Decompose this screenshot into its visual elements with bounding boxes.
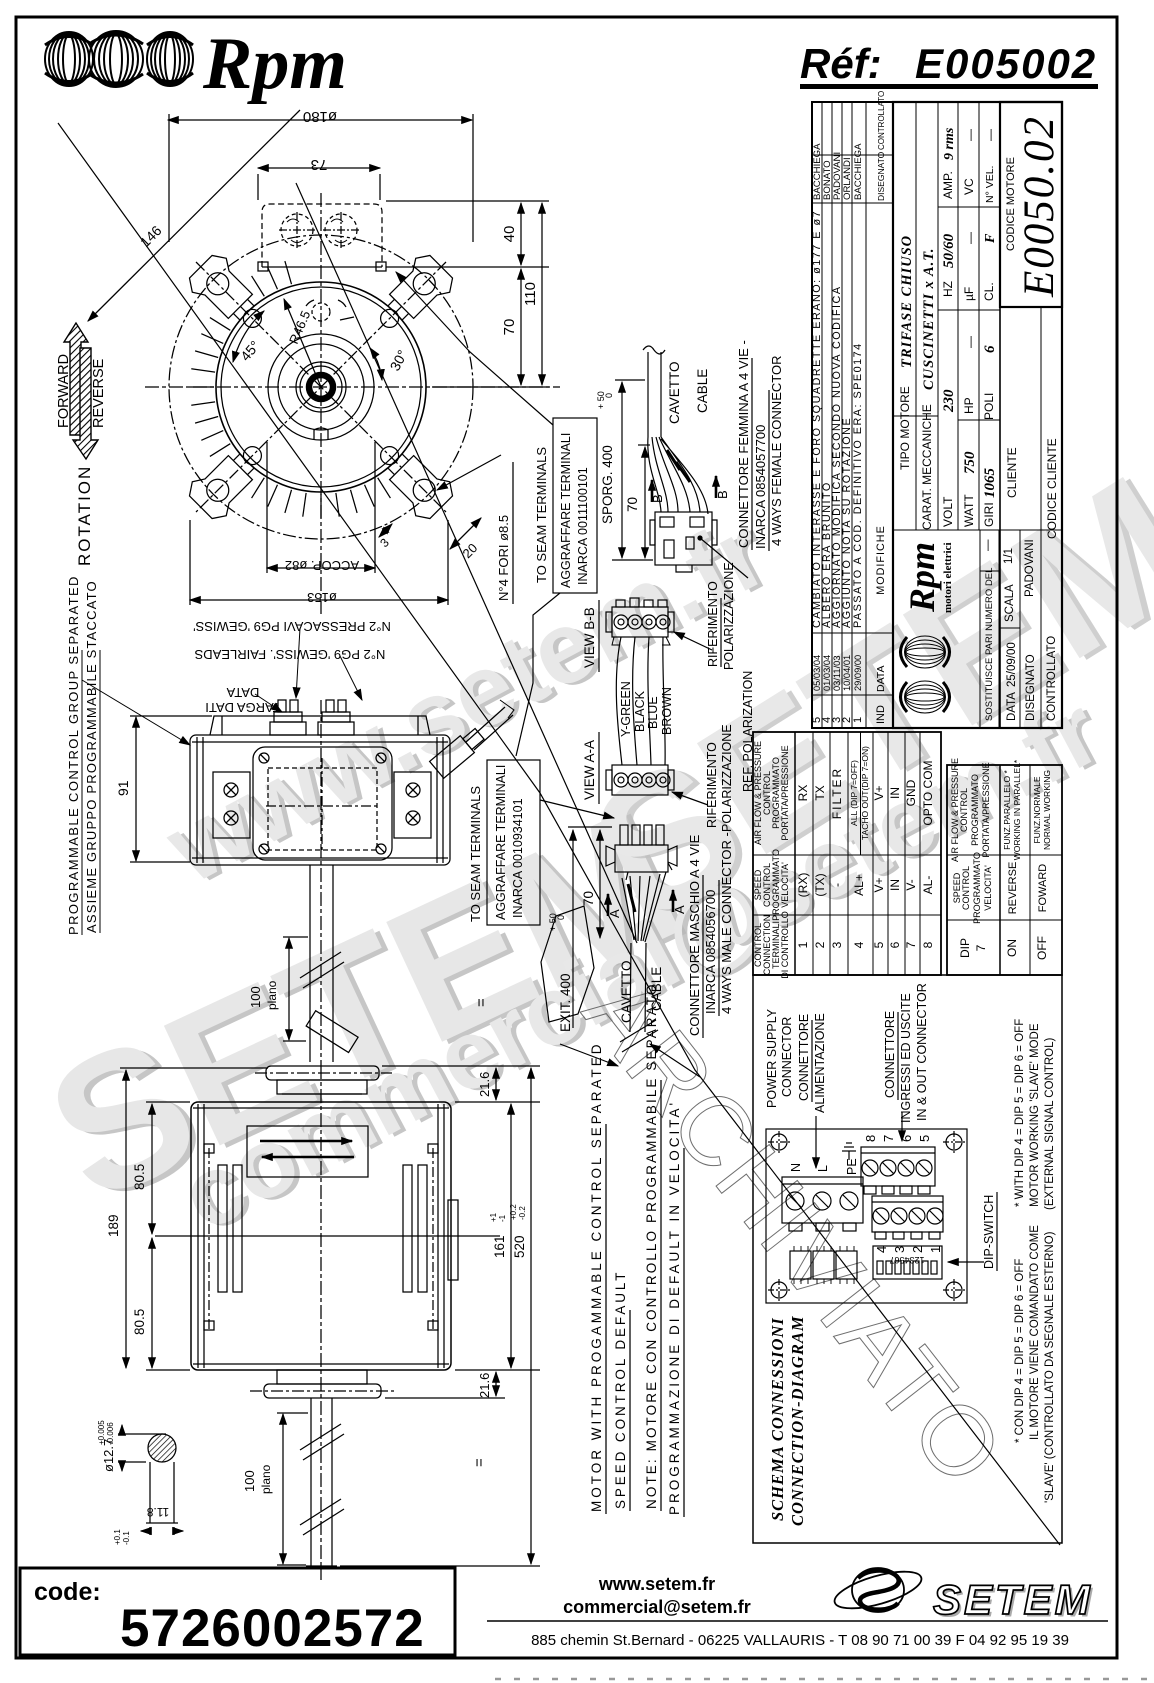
- svg-text:IND: IND: [875, 705, 887, 724]
- svg-text:1: 1: [796, 941, 810, 948]
- svg-text:GND: GND: [904, 779, 918, 806]
- svg-text:PASSATO A COD. DEFINITIVO ERA:: PASSATO A COD. DEFINITIVO ERA: SPE0174: [852, 342, 864, 628]
- svg-text:WORKING IN PARALLEL*: WORKING IN PARALLEL*: [1012, 759, 1022, 860]
- svg-text:BLUE: BLUE: [646, 696, 660, 729]
- svg-text:B: B: [715, 490, 730, 499]
- svg-text:10/04/01: 10/04/01: [842, 655, 852, 691]
- svg-text:FUNZ.NORMALE: FUNZ.NORMALE: [1032, 776, 1042, 843]
- svg-text:Réf:: Réf:: [800, 40, 882, 87]
- svg-text:DI CONTROLLO: DI CONTROLLO: [780, 911, 790, 979]
- svg-text:CONNECTION-DIAGRAM: CONNECTION-DIAGRAM: [788, 1315, 807, 1526]
- svg-text:05/03/04: 05/03/04: [812, 655, 822, 691]
- svg-text:NOTE: MOTORE CON CONTROLLO PRO: NOTE: MOTORE CON CONTROLLO PROGRAMMABILE…: [644, 983, 659, 1509]
- svg-text:520: 520: [512, 1235, 527, 1258]
- svg-text:4 WAYS FEMALE CONNECTOR: 4 WAYS FEMALE CONNECTOR: [769, 356, 784, 546]
- svg-text:8: 8: [863, 1135, 878, 1142]
- svg-text:RIFERIMENTO: RIFERIMENTO: [705, 742, 719, 828]
- svg-text:FILTER: FILTER: [830, 767, 844, 819]
- svg-text:A: A: [607, 909, 622, 918]
- svg-text:REVERSE: REVERSE: [1007, 862, 1019, 915]
- svg-text:B: B: [650, 494, 665, 503]
- svg-text:1/1: 1/1: [1003, 548, 1015, 564]
- svg-text:91: 91: [115, 780, 131, 796]
- svg-text:161: 161: [492, 1235, 507, 1258]
- svg-text:80.5: 80.5: [132, 1309, 147, 1335]
- svg-text:BLACK: BLACK: [633, 690, 647, 732]
- svg-text:HP: HP: [962, 397, 976, 414]
- svg-text:11.8: 11.8: [146, 1505, 169, 1519]
- svg-text:BACCHIEGA: BACCHIEGA: [853, 143, 864, 200]
- svg-text:OPTO COM: OPTO COM: [921, 760, 935, 825]
- svg-text:-0.006: -0.006: [106, 1422, 115, 1445]
- svg-text:plano: plano: [259, 1464, 273, 1494]
- svg-text:CODICE CLIENTE: CODICE CLIENTE: [1045, 438, 1059, 539]
- svg-text:PROGRAMMABLE CONTROL GROUP SEP: PROGRAMMABLE CONTROL GROUP SEPARATED: [66, 575, 81, 935]
- svg-text:SPORG. 400: SPORG. 400: [600, 445, 615, 524]
- svg-text:IN & OUT CONNECTOR: IN & OUT CONNECTOR: [915, 983, 929, 1121]
- svg-text:VIEW B-B: VIEW B-B: [582, 607, 597, 668]
- svg-text:TRIFASE CHIUSO: TRIFASE CHIUSO: [899, 235, 915, 368]
- svg-text:FOWARD: FOWARD: [1037, 864, 1049, 913]
- svg-text:DIP: DIP: [958, 938, 972, 958]
- svg-text:F: F: [983, 233, 998, 244]
- svg-text:CUSCINETTI x A.T.: CUSCINETTI x A.T.: [921, 248, 937, 390]
- svg-text:CONTROLLATO: CONTROLLATO: [877, 91, 886, 150]
- svg-text:100: 100: [242, 1470, 257, 1492]
- svg-text:Y-GREEN: Y-GREEN: [619, 681, 633, 737]
- svg-text:50/60: 50/60: [941, 233, 957, 268]
- svg-text:25/09/00: 25/09/00: [1006, 642, 1018, 687]
- svg-text:A: A: [672, 905, 687, 914]
- svg-text:INGRESSI ED USCITE: INGRESSI ED USCITE: [899, 993, 913, 1123]
- svg-text:HZ: HZ: [941, 281, 955, 297]
- svg-text:CAVETTO: CAVETTO: [667, 361, 682, 424]
- svg-text:CONTROL: CONTROL: [959, 788, 969, 832]
- svg-text:4 WAYS MALE CONNECTOR -: 4 WAYS MALE CONNECTOR -: [719, 832, 734, 1014]
- svg-text:1: 1: [852, 717, 864, 723]
- svg-text:-0.2: -0.2: [518, 1206, 527, 1220]
- svg-text:70: 70: [501, 319, 518, 336]
- svg-text:CARAT. MECCANICHE: CARAT. MECCANICHE: [920, 404, 934, 530]
- svg-text:plano: plano: [265, 980, 279, 1010]
- svg-text:03/11/03: 03/11/03: [832, 656, 842, 692]
- svg-text:PORTATA/PRESSIONE: PORTATA/PRESSIONE: [780, 745, 790, 840]
- svg-text:VC: VC: [962, 178, 976, 195]
- svg-text:FUNZ.PARALLELO *: FUNZ.PARALLELO *: [1002, 769, 1012, 849]
- svg-text:AGGRAFFARE TERMINALI: AGGRAFFARE TERMINALI: [559, 433, 573, 588]
- svg-text:29/09/00: 29/09/00: [853, 655, 863, 691]
- svg-text:EXIT. 400: EXIT. 400: [558, 973, 573, 1032]
- svg-text:70: 70: [581, 891, 596, 906]
- svg-text:CONNETTORE MASCHIO A 4 VIE: CONNETTORE MASCHIO A 4 VIE: [687, 834, 702, 1036]
- svg-text:GIRI: GIRI: [982, 502, 996, 527]
- svg-text:80.5: 80.5: [132, 1164, 147, 1190]
- svg-text:ON: ON: [1005, 939, 1019, 957]
- svg-text:ASSIEME GRUPPO PROGRAMMABILE S: ASSIEME GRUPPO PROGRAMMABILE STACCATO: [84, 580, 99, 933]
- svg-text:40: 40: [501, 226, 518, 243]
- svg-text:6: 6: [888, 941, 902, 948]
- svg-text:+1: +1: [489, 1212, 498, 1222]
- svg-text:PROGRAMMAZIONE DI DEFAULT IN V: PROGRAMMAZIONE DI DEFAULT IN VELOCITA': [667, 1100, 682, 1515]
- svg-text:N°4 FORI ø8.5: N°4 FORI ø8.5: [496, 515, 511, 601]
- svg-text:V+: V+: [872, 785, 886, 800]
- svg-text:=: =: [473, 998, 490, 1007]
- svg-text:V+: V+: [872, 877, 886, 892]
- svg-text:INARCA 0854057700: INARCA 0854057700: [753, 425, 768, 549]
- svg-text:21.6: 21.6: [477, 1072, 492, 1097]
- svg-text:0: 0: [556, 915, 566, 920]
- svg-text:INARCA 0011100101: INARCA 0011100101: [576, 467, 590, 585]
- svg-text:(TX): (TX): [813, 873, 827, 896]
- svg-text:PORTATA/PRESSIONE: PORTATA/PRESSIONE: [981, 762, 991, 857]
- svg-text:CL.: CL.: [982, 282, 996, 301]
- svg-text:DIP-SWITCH: DIP-SWITCH: [982, 1195, 996, 1269]
- svg-text:DISEGNATO: DISEGNATO: [876, 151, 886, 201]
- svg-text:V-: V-: [904, 879, 918, 890]
- svg-text:SCALA: SCALA: [1004, 584, 1016, 622]
- svg-text:VELOCITA': VELOCITA': [983, 865, 993, 911]
- svg-text:RIFERIMENTO: RIFERIMENTO: [706, 581, 720, 667]
- svg-text:ALL (DIP 7=OFF): ALL (DIP 7=OFF): [849, 760, 859, 826]
- svg-text:IN: IN: [888, 879, 902, 891]
- svg-text:VIEW A-A: VIEW A-A: [582, 740, 597, 800]
- svg-text:=: =: [471, 1458, 488, 1467]
- svg-text:CONTROLLATO: CONTROLLATO: [1046, 636, 1058, 721]
- svg-text:4: 4: [852, 941, 866, 948]
- svg-text:—: —: [963, 232, 977, 244]
- svg-text:TARGA DATI: TARGA DATI: [205, 700, 280, 715]
- svg-text:—: —: [963, 129, 977, 141]
- svg-text:230: 230: [941, 389, 957, 413]
- svg-text:IL MOTORE VIENE COMANDATO COME: IL MOTORE VIENE COMANDATO COME: [1029, 1225, 1041, 1440]
- svg-text:RX: RX: [796, 785, 810, 802]
- svg-text:VELOCITA': VELOCITA': [780, 862, 790, 908]
- svg-text:CONNETTORE: CONNETTORE: [883, 1011, 897, 1098]
- svg-text:REVERSE: REVERSE: [91, 358, 107, 428]
- svg-text:WATT: WATT: [962, 494, 976, 527]
- svg-text:POLARIZZAZIONE: POLARIZZAZIONE: [722, 562, 736, 670]
- svg-text:73: 73: [311, 156, 328, 173]
- svg-text:MOTOR WITH PROGAMMABLE CONTROL: MOTOR WITH PROGAMMABLE CONTROL SEPARATED: [589, 1041, 604, 1512]
- svg-text:POLI: POLI: [982, 393, 996, 420]
- svg-text:motori elettrici: motori elettrici: [942, 542, 954, 613]
- svg-text:7: 7: [974, 944, 988, 951]
- svg-text:6: 6: [982, 345, 998, 353]
- svg-text:SPEED CONTROL DEFAULT: SPEED CONTROL DEFAULT: [613, 1270, 628, 1509]
- svg-text:—: —: [982, 539, 994, 551]
- svg-text:2: 2: [813, 941, 827, 948]
- svg-text:ROTATION: ROTATION: [75, 465, 94, 566]
- svg-text:+0.2: +0.2: [509, 1204, 518, 1220]
- svg-text:-0.1: -0.1: [122, 1531, 131, 1545]
- svg-text:* CON DIP 4 = DIP 5 = DIP 6 =: * CON DIP 4 = DIP 5 = DIP 6 = OFF: [1014, 1259, 1026, 1443]
- svg-text:DISEGNATO: DISEGNATO: [1025, 654, 1037, 721]
- svg-text:ORLANDI: ORLANDI: [842, 157, 853, 200]
- svg-text:OFF: OFF: [1035, 936, 1049, 960]
- svg-text:CONTROL: CONTROL: [961, 866, 971, 910]
- svg-text:CAVETTO: CAVETTO: [619, 960, 634, 1023]
- svg-text:AL-: AL-: [921, 876, 935, 895]
- svg-text:2: 2: [910, 1246, 925, 1253]
- svg-text:DATA: DATA: [875, 666, 887, 692]
- svg-text:1: 1: [928, 1246, 943, 1253]
- svg-text:(EXTERNAL SIGNAL CONTROL): (EXTERNAL SIGNAL CONTROL): [1044, 1038, 1056, 1210]
- svg-text:SOSTITUISCE PARI NUMERO DEL: SOSTITUISCE PARI NUMERO DEL: [984, 568, 995, 721]
- svg-text:'SLAVE' (CONTROLLATO DA SEGNAL: 'SLAVE' (CONTROLLATO DA SEGNALE ESTERNO): [1044, 1231, 1056, 1503]
- svg-text:AMP.: AMP.: [941, 171, 955, 199]
- svg-text:CLIENTE: CLIENTE: [1005, 447, 1019, 498]
- svg-text:commercial@setem.fr: commercial@setem.fr: [563, 1597, 751, 1617]
- svg-text:TO SEAM TERMINALS: TO SEAM TERMINALS: [534, 447, 549, 583]
- svg-text:3: 3: [892, 1246, 907, 1253]
- svg-text:+0.005: +0.005: [97, 1420, 106, 1445]
- svg-text:N°2 PRESSACAVI PG9 'GEWISS': N°2 PRESSACAVI PG9 'GEWISS': [193, 619, 391, 634]
- svg-text:TX: TX: [813, 785, 827, 800]
- svg-text:5: 5: [917, 1135, 932, 1142]
- svg-text:885 chemin St.Bernard - 0622: 885 chemin St.Bernard - 06225 VALLAURIS …: [531, 1632, 1069, 1649]
- svg-text:5726002572: 5726002572: [120, 1599, 425, 1658]
- svg-text:SCHEMA CONNESSIONI: SCHEMA CONNESSIONI: [768, 1317, 787, 1521]
- svg-text:9 rms: 9 rms: [942, 127, 957, 160]
- svg-text:DATA: DATA: [1006, 692, 1018, 721]
- svg-text:CONNETTORE: CONNETTORE: [797, 1014, 811, 1101]
- svg-text:—: —: [963, 336, 977, 348]
- svg-text:-: -: [830, 883, 844, 887]
- svg-text:PADOVANI: PADOVANI: [1024, 539, 1036, 597]
- svg-text:POWER SUPPLY: POWER SUPPLY: [765, 1008, 779, 1108]
- svg-text:Rpm: Rpm: [202, 23, 347, 105]
- svg-text:5: 5: [872, 941, 886, 948]
- svg-text:BROWN: BROWN: [660, 687, 674, 735]
- svg-text:(RX): (RX): [796, 873, 810, 898]
- svg-text:7: 7: [881, 1135, 896, 1142]
- svg-text:70: 70: [625, 497, 640, 512]
- svg-text:L: L: [816, 1165, 830, 1172]
- svg-text:-1: -1: [498, 1214, 507, 1222]
- svg-text:code:: code:: [34, 1578, 101, 1606]
- svg-text:VOLT: VOLT: [941, 496, 955, 527]
- svg-text:POLARIZZAZIONE: POLARIZZAZIONE: [720, 724, 734, 832]
- svg-text:8: 8: [921, 941, 935, 948]
- svg-text:MODIFICHE: MODIFICHE: [875, 525, 887, 595]
- svg-text:750: 750: [962, 451, 978, 474]
- svg-text:E005002: E005002: [915, 40, 1097, 87]
- svg-text:189: 189: [106, 1214, 121, 1237]
- svg-text:+0.1: +0.1: [113, 1529, 122, 1545]
- svg-text:INARCA 0854056700: INARCA 0854056700: [703, 890, 718, 1014]
- svg-text:N: N: [789, 1163, 803, 1172]
- svg-text:TIPO MOTORE: TIPO MOTORE: [898, 386, 912, 470]
- svg-text:4: 4: [874, 1246, 889, 1253]
- svg-text:SETEM: SETEM: [933, 1576, 1093, 1623]
- svg-text:0: 0: [604, 393, 614, 398]
- svg-text:FORWARD: FORWARD: [56, 354, 72, 428]
- svg-text:INARCA 0010934101: INARCA 0010934101: [511, 798, 525, 918]
- svg-text:ø180: ø180: [303, 108, 337, 125]
- svg-text:7: 7: [904, 941, 918, 948]
- svg-text:DATA: DATA: [226, 685, 259, 700]
- svg-text:IN: IN: [888, 787, 902, 799]
- svg-text:CONNETTORE FEMMINA A 4 VIE -: CONNETTORE FEMMINA A 4 VIE -: [736, 340, 751, 548]
- svg-text:NORMAL WORKING: NORMAL WORKING: [1042, 770, 1052, 850]
- svg-text:01/03/04: 01/03/04: [822, 655, 832, 691]
- svg-text:110: 110: [522, 282, 539, 306]
- svg-text:MOTOR WORKING 'SLAVE' MODE: MOTOR WORKING 'SLAVE' MODE: [1029, 1023, 1041, 1207]
- svg-text:TO SEAM TERMINALS: TO SEAM TERMINALS: [468, 786, 483, 922]
- svg-text:CABLE: CABLE: [695, 369, 710, 413]
- svg-text:Rpm: Rpm: [902, 542, 942, 613]
- svg-text:ALIMENTAZIONE: ALIMENTAZIONE: [813, 1013, 827, 1113]
- svg-text:ø153: ø153: [307, 590, 337, 605]
- svg-text:TACHO OUT(DIP 7=ON): TACHO OUT(DIP 7=ON): [860, 746, 870, 840]
- svg-text:www.setem.fr: www.setem.fr: [598, 1574, 715, 1594]
- svg-text:3: 3: [830, 941, 844, 948]
- svg-text:1065: 1065: [982, 468, 998, 499]
- svg-text:PROGRAMMATO: PROGRAMMATO: [970, 774, 980, 846]
- svg-text:AL+: AL+: [852, 874, 866, 896]
- svg-text:6: 6: [899, 1135, 914, 1142]
- svg-text:N° VEL.: N° VEL.: [984, 166, 996, 203]
- svg-text:21.6: 21.6: [477, 1373, 492, 1398]
- svg-text:ACCOP. ø82: ACCOP. ø82: [285, 558, 359, 573]
- svg-text:100: 100: [248, 986, 263, 1008]
- svg-text:* WITH DIP 4 = DIP 5 = DIP 6 =: * WITH DIP 4 = DIP 5 = DIP 6 = OFF: [1014, 1019, 1026, 1207]
- svg-text:AGGRAFFARE TERMINALI: AGGRAFFARE TERMINALI: [494, 765, 508, 920]
- svg-text:PROGRAMMATO: PROGRAMMATO: [972, 852, 982, 924]
- svg-text:CONNECTOR: CONNECTOR: [780, 1017, 794, 1097]
- svg-text:E0050.02: E0050.02: [1016, 115, 1063, 298]
- svg-text:N°2 PG9 'GEWISS'. FAIRLEADS: N°2 PG9 'GEWISS'. FAIRLEADS: [194, 647, 385, 662]
- svg-text:PE: PE: [845, 1158, 859, 1175]
- svg-text:—: —: [983, 129, 997, 141]
- svg-text:µF: µF: [962, 287, 976, 301]
